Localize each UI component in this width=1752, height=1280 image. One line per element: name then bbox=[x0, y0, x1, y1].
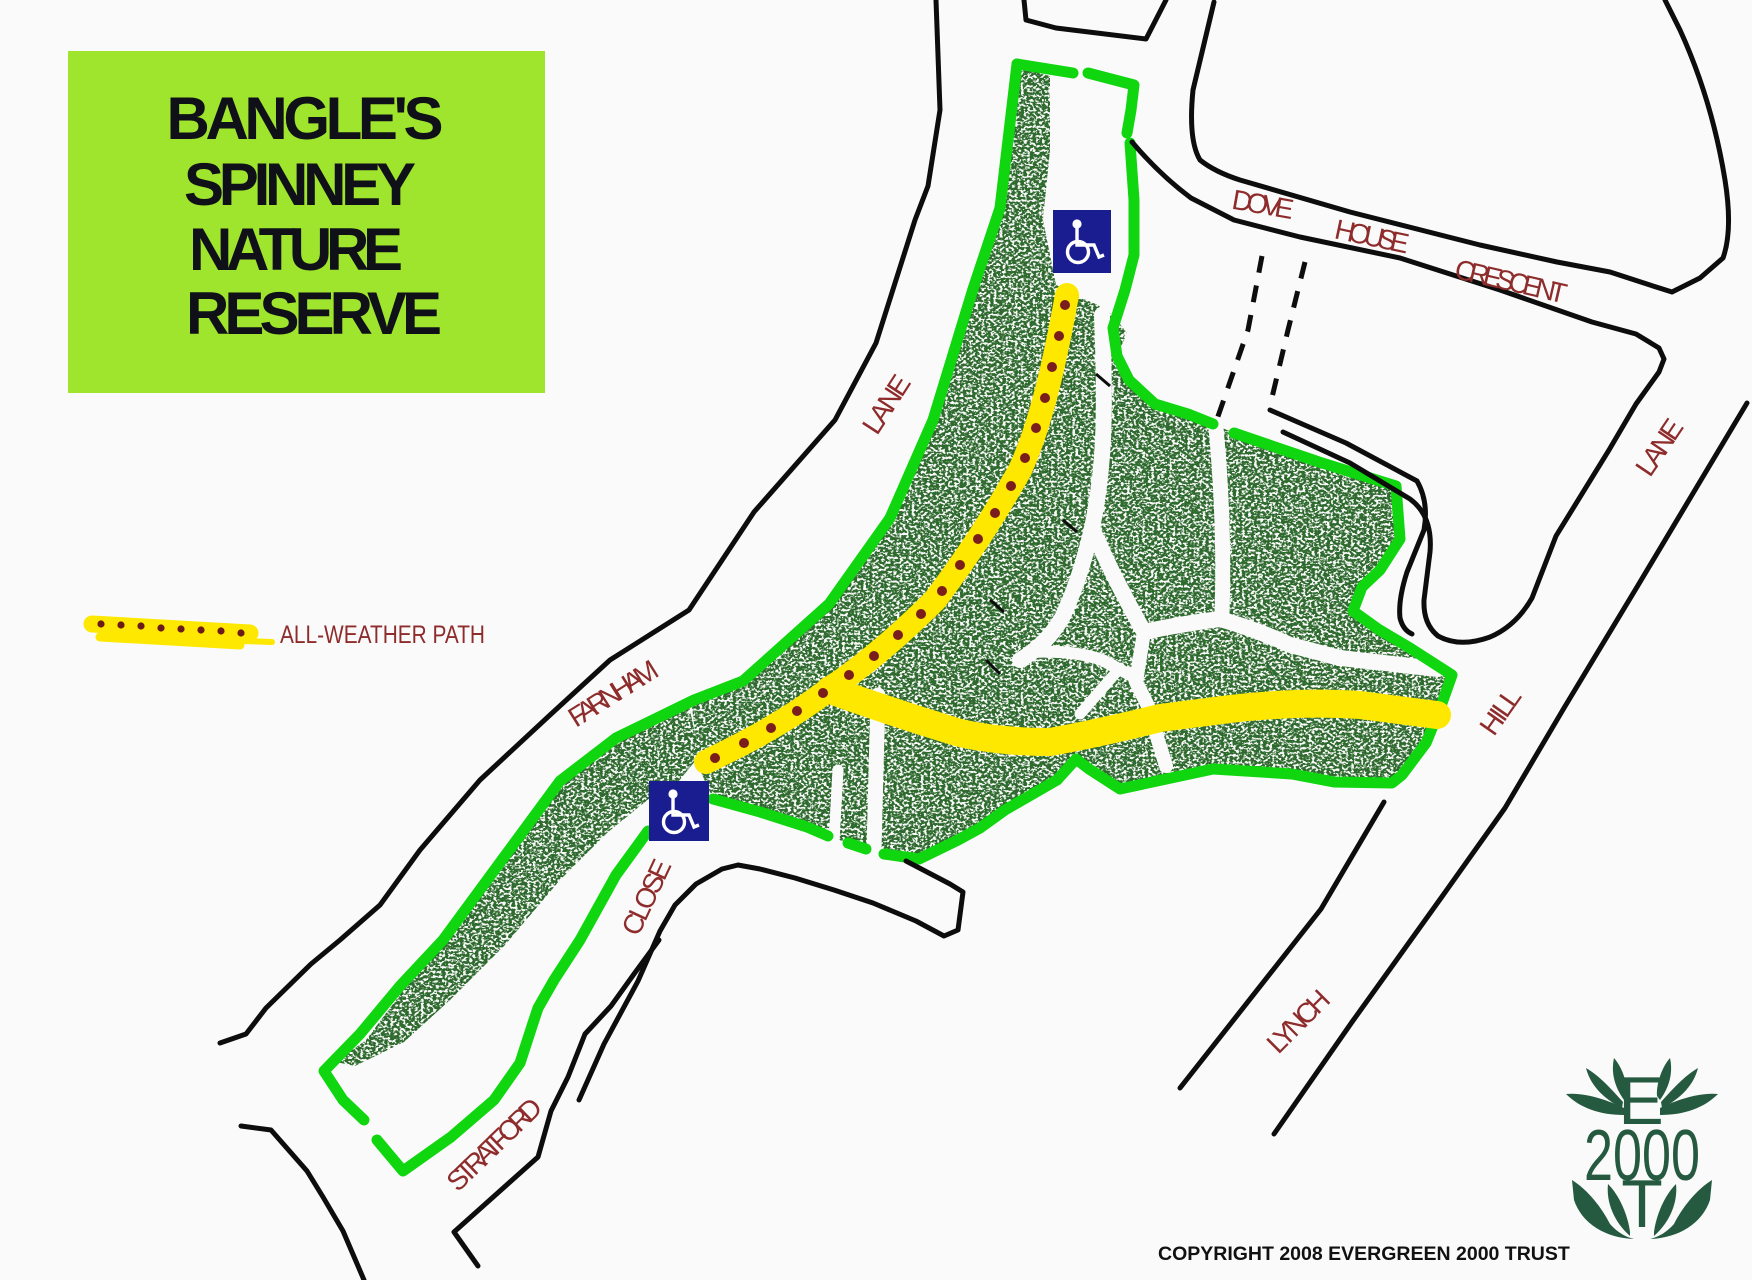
svg-text:ALL-WEATHER PATH: ALL-WEATHER PATH bbox=[280, 621, 485, 649]
svg-text:BANGLE'S: BANGLE'S bbox=[167, 85, 444, 152]
svg-text:RESERVE: RESERVE bbox=[186, 280, 442, 347]
svg-text:COPYRIGHT 2008 EVERGREEN 2000: COPYRIGHT 2008 EVERGREEN 2000 TRUST bbox=[1158, 1243, 1570, 1265]
svg-text:SPINNEY: SPINNEY bbox=[184, 151, 416, 218]
svg-text:NATURE: NATURE bbox=[189, 216, 403, 283]
